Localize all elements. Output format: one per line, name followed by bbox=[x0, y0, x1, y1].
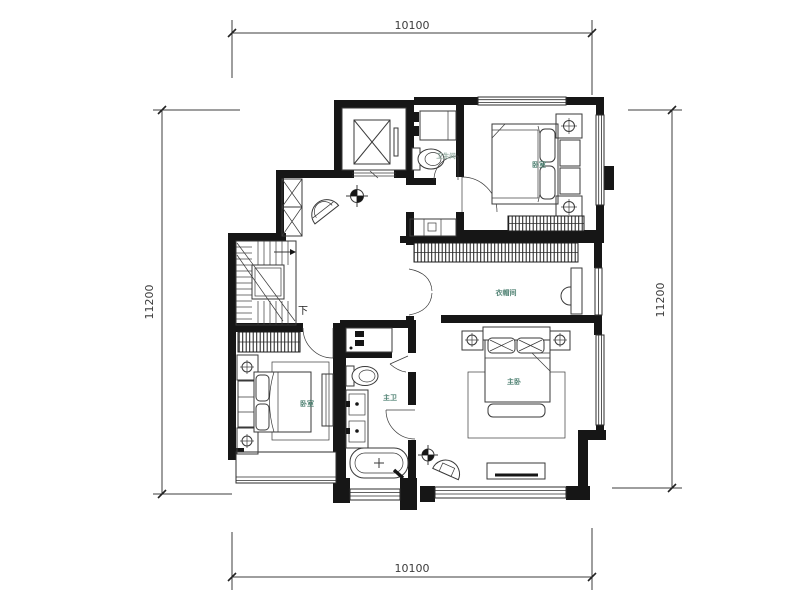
dimension-bottom: 10100 bbox=[228, 528, 596, 590]
dimension-top: 10100 bbox=[228, 19, 596, 95]
label-bathroom: 卫生间 bbox=[436, 151, 456, 160]
wardrobe-hatch-cloakroom bbox=[414, 243, 578, 262]
staircase: 下 bbox=[236, 241, 308, 325]
side-cabinet bbox=[560, 140, 580, 166]
floor-plan-canvas: 10100 10100 11200 11200 bbox=[0, 0, 800, 600]
wardrobe-hatch-tr bbox=[508, 216, 584, 231]
window-bathroom-bottom bbox=[350, 489, 400, 500]
bath-upper-door bbox=[390, 356, 408, 372]
window-master-bottom bbox=[435, 487, 566, 498]
bath-lower-door bbox=[386, 410, 415, 439]
label-bedroom-top-right: 卧室 bbox=[532, 160, 546, 169]
desk bbox=[322, 374, 333, 426]
bay-window-bottom-left bbox=[236, 452, 336, 483]
label-master-bedroom: 主卧 bbox=[507, 377, 521, 386]
bedroom-top-right bbox=[462, 114, 584, 231]
elevator-shaft bbox=[342, 108, 406, 178]
bedroom-bl-door-arc bbox=[303, 328, 333, 358]
master-bed bbox=[485, 338, 550, 402]
master-armchair bbox=[433, 456, 464, 480]
nightstand-lamp bbox=[550, 331, 570, 350]
stair-down-label: 下 bbox=[298, 306, 308, 317]
side-cabinet bbox=[560, 168, 580, 194]
tv-cabinet bbox=[487, 463, 545, 479]
laundry-closet bbox=[346, 328, 392, 352]
label-bedroom-bottom-left: 卧室 bbox=[300, 399, 314, 408]
dimension-left: 11200 bbox=[143, 106, 240, 498]
double-swing-door bbox=[409, 269, 432, 315]
nightstand-lamp bbox=[556, 196, 582, 218]
bedroom-bottom-left bbox=[237, 328, 333, 454]
dimension-bottom-value: 10100 bbox=[395, 562, 430, 575]
cloakroom bbox=[409, 243, 582, 315]
bed-top-right bbox=[492, 124, 558, 204]
window-right-upper bbox=[596, 115, 604, 205]
label-cloakroom: 衣帽间 bbox=[496, 288, 517, 297]
double-vanity bbox=[346, 390, 368, 448]
window-right-master bbox=[596, 335, 604, 425]
floor-plan-drawing: 10100 10100 11200 11200 bbox=[0, 0, 800, 600]
label-master-bathroom: 主卫 bbox=[383, 393, 397, 402]
shelf-unit bbox=[282, 179, 302, 236]
foyer bbox=[282, 179, 456, 236]
master-bedroom bbox=[418, 327, 570, 480]
bathtub bbox=[350, 448, 408, 478]
window-top bbox=[478, 97, 566, 105]
master-bathroom bbox=[346, 328, 415, 478]
console-dresser bbox=[410, 219, 456, 236]
floor-lamp-icon bbox=[418, 445, 438, 465]
dimension-right: 11200 bbox=[612, 106, 682, 492]
bathroom-top bbox=[412, 111, 458, 180]
sink-counter bbox=[420, 111, 456, 140]
stair-treads bbox=[236, 241, 288, 325]
dimension-right-value: 11200 bbox=[654, 283, 667, 318]
dimension-top-value: 10100 bbox=[395, 19, 430, 32]
floor-lamp-icon bbox=[346, 185, 368, 207]
foyer-armchair bbox=[306, 194, 339, 224]
wardrobe-hatch-bl bbox=[238, 332, 300, 352]
toilet-master bbox=[346, 366, 378, 386]
nightstand-lamp bbox=[556, 114, 582, 138]
bed-bench bbox=[488, 404, 545, 417]
dimension-left-value: 11200 bbox=[143, 285, 156, 320]
window-right-cloakroom bbox=[595, 268, 602, 315]
cloakroom-door-leaf bbox=[571, 268, 582, 314]
stair-direction-arrow bbox=[274, 249, 296, 255]
nightstand-lamp bbox=[462, 331, 483, 350]
